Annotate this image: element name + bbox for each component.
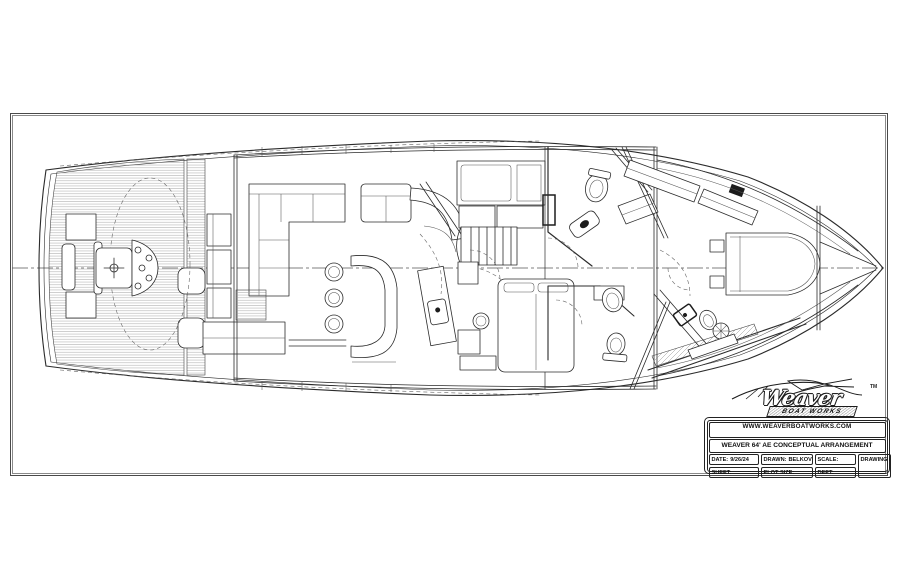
boatworks-ribbon: BOAT WORKS xyxy=(766,406,858,417)
field-sheet: SHEET: xyxy=(709,467,759,478)
deck-hatch-port xyxy=(66,214,96,240)
field-dept: DEPT: xyxy=(815,467,856,478)
website-text: WWW.WEAVERBOATWORKS.COM xyxy=(710,423,885,431)
cockpit-door xyxy=(178,268,205,294)
companionway-stairs xyxy=(457,227,518,265)
curved-sofa xyxy=(351,255,397,357)
field-plot-size: PLOT SIZE: xyxy=(761,467,813,478)
salon-steps xyxy=(236,290,266,320)
field-drawn: DRAWN:BELKOV xyxy=(761,454,813,465)
title-block: Weaver BOAT WORKS TM WWW.WEAVERBOATWORKS… xyxy=(702,377,894,476)
fields-grid: DATE:9/26/24 DRAWN:BELKOV SCALE: DRAWING… xyxy=(709,454,886,470)
contact-row: WWW.WEAVERBOATWORKS.COM 390 DEALE ROAD P… xyxy=(709,422,886,438)
weaver-logo: Weaver BOAT WORKS TM xyxy=(702,377,894,417)
rocket-launcher xyxy=(62,244,75,290)
forward-head xyxy=(654,290,738,359)
deck-hatch-stbd xyxy=(66,292,96,318)
master-stateroom xyxy=(458,262,574,372)
boat-plan-svg xyxy=(0,0,900,582)
sheet-title: WEAVER 64' AE CONCEPTUAL ARRANGEMENT xyxy=(709,439,886,453)
bar-stools xyxy=(325,263,343,333)
field-drawing-no: DRAWING # xyxy=(858,454,891,478)
field-scale: SCALE: xyxy=(815,454,856,465)
fighting-chair xyxy=(94,240,158,296)
cockpit-door-2 xyxy=(178,318,205,348)
drawing-sheet: Weaver BOAT WORKS TM WWW.WEAVERBOATWORKS… xyxy=(0,0,900,582)
title-block-border: WWW.WEAVERBOATWORKS.COM 390 DEALE ROAD P… xyxy=(704,417,890,474)
tm-mark: TM xyxy=(870,384,877,390)
field-date: DATE:9/26/24 xyxy=(709,454,759,465)
galley-counter xyxy=(457,161,545,205)
salon-console xyxy=(418,266,457,345)
